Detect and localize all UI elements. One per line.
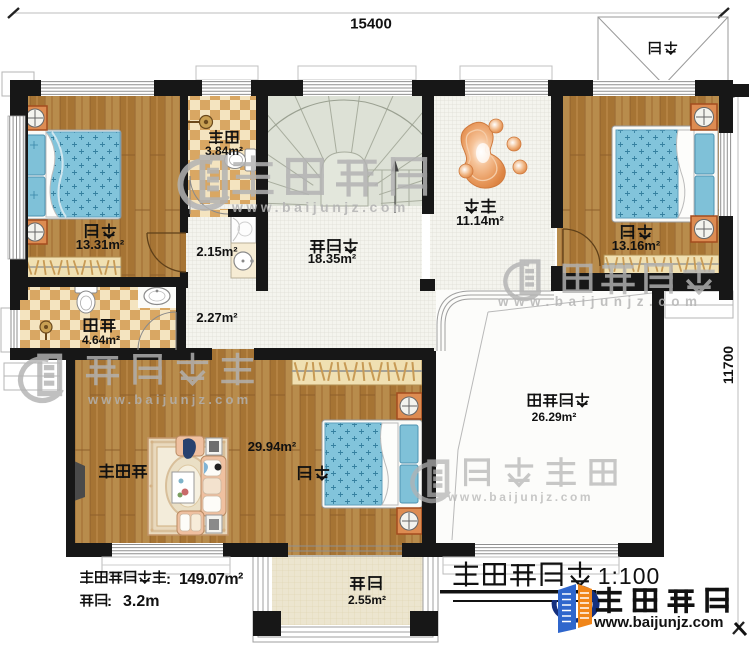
svg-text:1:100: 1:100 (598, 563, 661, 589)
svg-text:2.15m²: 2.15m² (196, 244, 238, 259)
svg-text:www.baijunjz.com: www.baijunjz.com (87, 392, 251, 407)
svg-text:11700: 11700 (720, 346, 736, 384)
svg-text::: : (166, 571, 171, 588)
svg-text:www.baijunjz.com: www.baijunjz.com (231, 199, 409, 215)
svg-text:3.2m: 3.2m (123, 593, 159, 610)
svg-text::: : (107, 593, 112, 610)
svg-text:2.27m²: 2.27m² (196, 310, 238, 325)
svg-text:2.55m²: 2.55m² (348, 593, 386, 607)
svg-text:13.16m²: 13.16m² (612, 238, 661, 253)
svg-text:www.baijunjz.com: www.baijunjz.com (497, 294, 703, 309)
svg-text:18.35m²: 18.35m² (308, 251, 357, 266)
svg-text:4.64m²: 4.64m² (82, 333, 120, 347)
svg-text:29.94m²: 29.94m² (248, 439, 297, 454)
svg-text:11.14m²: 11.14m² (456, 213, 504, 228)
svg-text:13.31m²: 13.31m² (76, 237, 125, 252)
svg-text:www.baijunjz.com: www.baijunjz.com (593, 614, 723, 631)
svg-text:15400: 15400 (350, 16, 392, 33)
svg-text:26.29m²: 26.29m² (532, 410, 577, 424)
svg-text:www.baijunjz.com: www.baijunjz.com (447, 490, 593, 504)
svg-text:149.07m²: 149.07m² (179, 571, 243, 588)
